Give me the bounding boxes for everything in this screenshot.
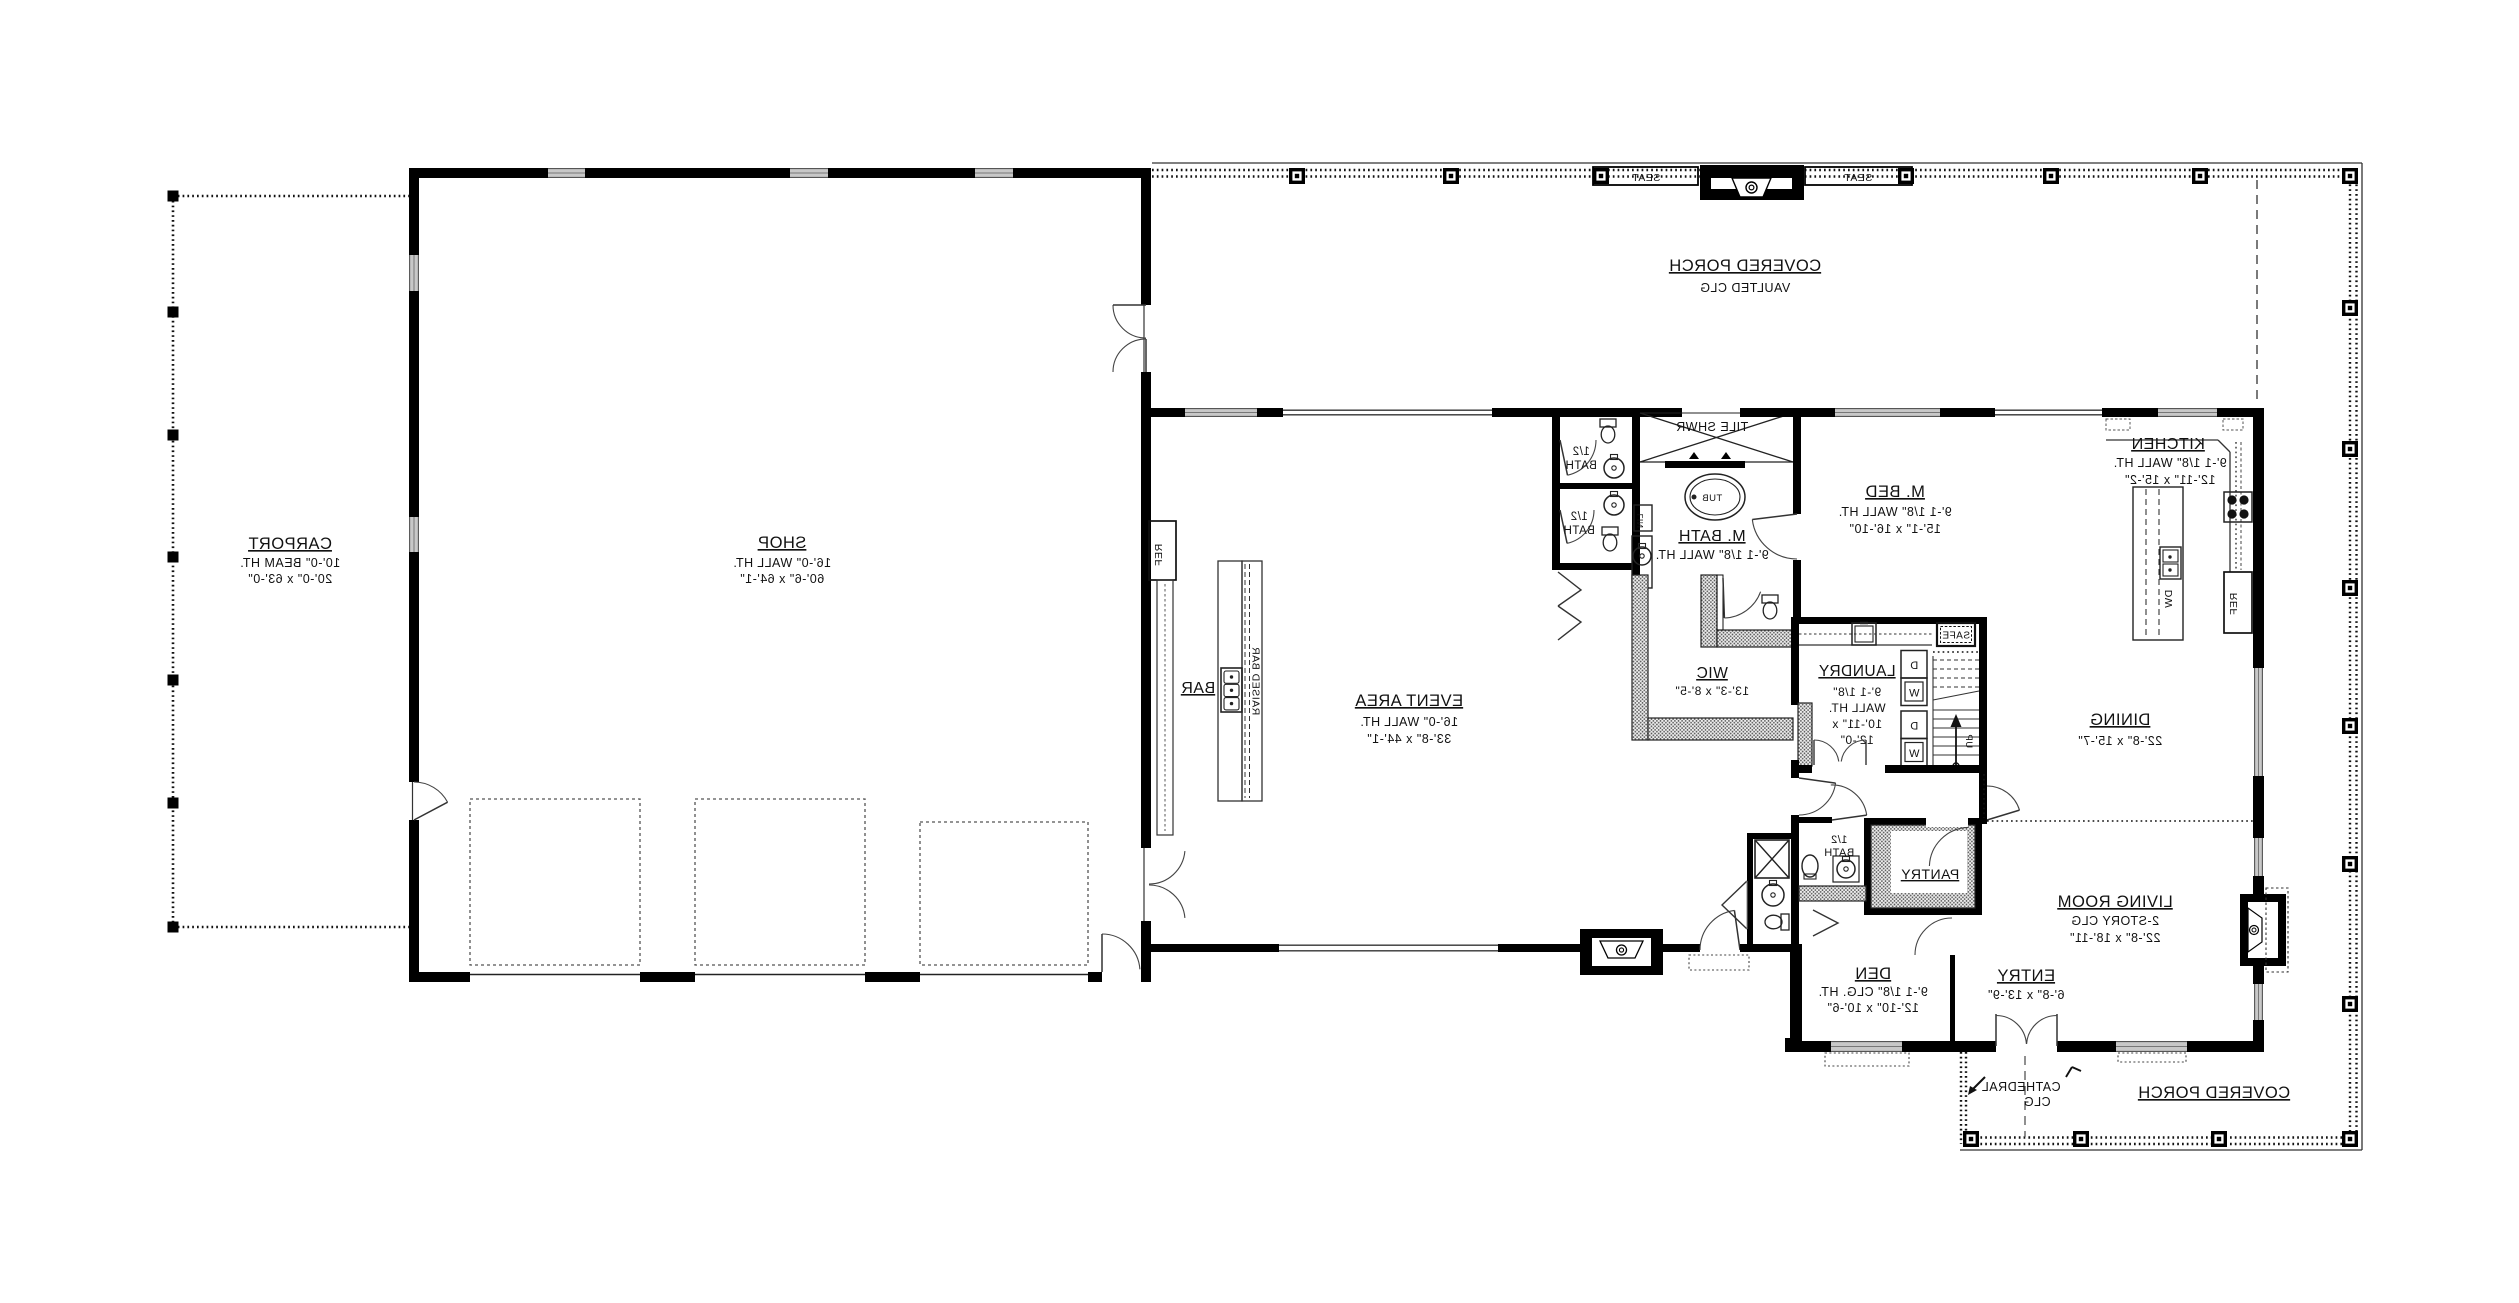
svg-text:LIN: LIN bbox=[1635, 514, 1645, 529]
svg-text:PANTRY: PANTRY bbox=[1901, 866, 1960, 882]
svg-text:CLG: CLG bbox=[2023, 1095, 2050, 1109]
svg-text:22'-8" x 18'-11": 22'-8" x 18'-11" bbox=[2070, 931, 2161, 945]
svg-text:9'-1 1/8" CLG. HT.: 9'-1 1/8" CLG. HT. bbox=[1818, 985, 1928, 999]
svg-text:2-STORY CLG: 2-STORY CLG bbox=[2071, 914, 2159, 928]
svg-text:TILE SHWR: TILE SHWR bbox=[1676, 420, 1749, 434]
svg-text:UP: UP bbox=[1963, 734, 1974, 748]
svg-text:SEAT: SEAT bbox=[1632, 172, 1661, 184]
svg-text:BATH: BATH bbox=[1563, 525, 1595, 537]
svg-text:M. BATH: M. BATH bbox=[1678, 528, 1745, 545]
svg-text:D: D bbox=[1910, 721, 1918, 733]
svg-text:12'-10" x 10'-6": 12'-10" x 10'-6" bbox=[1827, 1001, 1919, 1015]
svg-text:SHOP: SHOP bbox=[758, 534, 807, 552]
svg-text:LIVING ROOM: LIVING ROOM bbox=[2057, 893, 2173, 911]
svg-text:M. BED: M. BED bbox=[1865, 483, 1925, 501]
svg-text:WIC: WIC bbox=[1696, 665, 1728, 682]
svg-text:KITCHEN: KITCHEN bbox=[2131, 436, 2205, 453]
svg-text:DW: DW bbox=[2163, 590, 2175, 609]
svg-text:1/2: 1/2 bbox=[1570, 511, 1588, 523]
svg-text:D: D bbox=[1910, 660, 1918, 672]
svg-text:20'-0" x 63'-0": 20'-0" x 63'-0" bbox=[248, 572, 332, 586]
svg-text:SAFE: SAFE bbox=[1942, 631, 1970, 642]
svg-text:TUB: TUB bbox=[1702, 493, 1723, 504]
svg-text:13'-3" x 8'-5": 13'-3" x 8'-5" bbox=[1675, 684, 1749, 698]
svg-text:16'-0" WALL HT.: 16'-0" WALL HT. bbox=[1360, 715, 1458, 729]
svg-text:ENTRY: ENTRY bbox=[1997, 967, 2055, 985]
svg-text:6'-8" x 13'-9": 6'-8" x 13'-9" bbox=[1988, 988, 2065, 1002]
svg-text:BAR: BAR bbox=[1181, 680, 1215, 697]
svg-text:CARPORT: CARPORT bbox=[248, 535, 332, 553]
svg-text:1/2: 1/2 bbox=[1572, 446, 1590, 458]
svg-text:BATH: BATH bbox=[1565, 460, 1597, 472]
svg-text:CATHEDRAL: CATHEDRAL bbox=[1981, 1080, 2060, 1094]
svg-text:DEN: DEN bbox=[1855, 965, 1891, 983]
svg-text:1/2: 1/2 bbox=[1831, 834, 1848, 846]
svg-text:12'-11" x 15'-2": 12'-11" x 15'-2" bbox=[2125, 473, 2216, 487]
svg-text:DINING: DINING bbox=[2090, 711, 2151, 729]
svg-text:9'-1 1/8" WALL HT.: 9'-1 1/8" WALL HT. bbox=[1655, 548, 1769, 562]
svg-text:12'-0": 12'-0" bbox=[1840, 733, 1874, 747]
svg-text:9'-1 1/8" WALL HT.: 9'-1 1/8" WALL HT. bbox=[2113, 456, 2227, 470]
svg-text:LAUNDRY: LAUNDRY bbox=[1818, 663, 1895, 680]
svg-text:COVERED PORCH: COVERED PORCH bbox=[1669, 257, 1821, 275]
svg-text:RAISED BAR: RAISED BAR bbox=[1250, 647, 1262, 716]
svg-text:33'-8" x 44'-1": 33'-8" x 44'-1" bbox=[1367, 732, 1451, 746]
svg-text:9'-1 1/8": 9'-1 1/8" bbox=[1833, 685, 1881, 699]
svg-text:VAULTED CLG: VAULTED CLG bbox=[1700, 281, 1790, 295]
svg-text:SEAT: SEAT bbox=[1844, 172, 1873, 184]
svg-text:COVERED PORCH: COVERED PORCH bbox=[2138, 1084, 2290, 1102]
svg-text:16'-0" WALL HT.: 16'-0" WALL HT. bbox=[733, 556, 831, 570]
svg-text:EVENT AREA: EVENT AREA bbox=[1355, 692, 1463, 710]
svg-text:10'-11" x: 10'-11" x bbox=[1832, 717, 1882, 731]
svg-text:15'-1" x 16'-10": 15'-1" x 16'-10" bbox=[1849, 522, 1941, 536]
svg-text:60'-6" x 64'-1": 60'-6" x 64'-1" bbox=[740, 572, 824, 586]
svg-text:REF: REF bbox=[1153, 544, 1165, 567]
svg-text:BATH: BATH bbox=[1824, 847, 1855, 859]
svg-text:22'-8" x 15'-7": 22'-8" x 15'-7" bbox=[2078, 734, 2162, 748]
svg-text:REF: REF bbox=[2228, 593, 2240, 616]
svg-text:W: W bbox=[1908, 748, 1919, 760]
svg-text:9'-1 1/8" WALL HT.: 9'-1 1/8" WALL HT. bbox=[1838, 505, 1952, 519]
svg-text:10'-0" BEAM HT.: 10'-0" BEAM HT. bbox=[240, 556, 340, 570]
svg-text:W: W bbox=[1908, 688, 1919, 700]
svg-text:WALL HT.: WALL HT. bbox=[1828, 701, 1885, 715]
